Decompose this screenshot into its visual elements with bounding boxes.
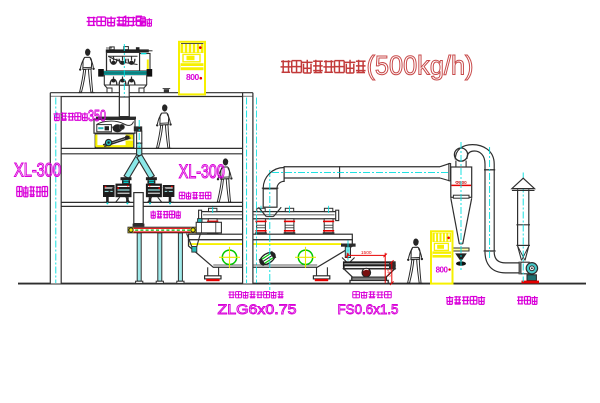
- svg-text:XL-300: XL-300: [14, 161, 61, 182]
- svg-text:ZLG6x0.75: ZLG6x0.75: [218, 301, 297, 317]
- svg-text:XL-300: XL-300: [179, 162, 225, 183]
- svg-text:FS0.6x1.5: FS0.6x1.5: [338, 301, 399, 317]
- svg-text:1500: 1500: [361, 250, 372, 256]
- svg-text:350: 350: [88, 108, 106, 125]
- svg-text:800: 800: [186, 72, 199, 82]
- svg-text:800: 800: [436, 265, 449, 274]
- svg-text:(500kg/h): (500kg/h): [367, 51, 474, 81]
- svg-text:345: 345: [387, 269, 393, 277]
